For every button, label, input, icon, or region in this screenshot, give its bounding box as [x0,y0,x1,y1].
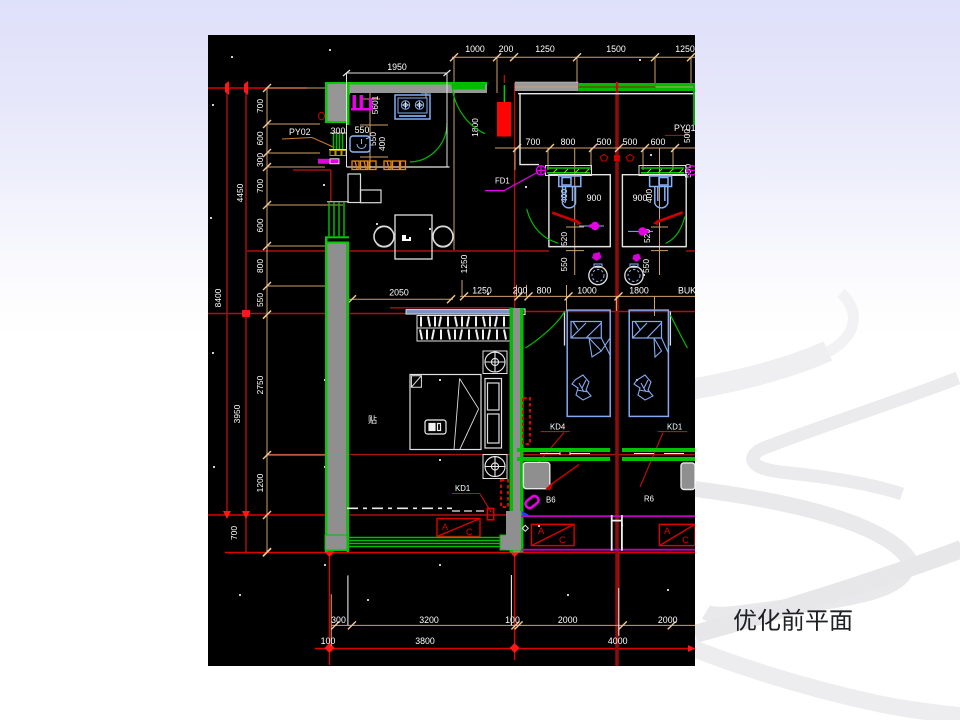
svg-text:400: 400 [559,189,569,203]
svg-text:1250: 1250 [459,254,469,273]
svg-text:600: 600 [255,131,265,145]
svg-text:800: 800 [561,137,576,147]
svg-text:600: 600 [651,137,666,147]
svg-text:550: 550 [255,293,265,307]
svg-text:1800: 1800 [629,286,649,296]
svg-text:BUK: BUK [678,286,695,296]
svg-text:R6: R6 [644,495,654,504]
svg-text:1200: 1200 [255,473,265,492]
svg-text:1250: 1250 [535,44,555,54]
svg-text:600: 600 [255,218,265,232]
svg-text:KD1: KD1 [667,423,682,432]
svg-text:300: 300 [255,153,265,167]
svg-text:3950: 3950 [232,404,242,423]
svg-text:400: 400 [644,189,654,203]
svg-text:200: 200 [513,286,528,296]
svg-text:4450: 4450 [235,183,245,202]
svg-text:A: A [538,526,545,537]
svg-text:800: 800 [537,286,552,296]
svg-text:700: 700 [229,526,239,540]
svg-text:200: 200 [499,44,514,54]
svg-text:700: 700 [526,137,541,147]
svg-text:550: 550 [559,257,569,271]
svg-text:2050: 2050 [389,288,409,298]
svg-text:KD1: KD1 [455,484,470,493]
svg-text:KD4: KD4 [550,423,566,432]
svg-text:4000: 4000 [608,636,628,646]
svg-text:300: 300 [331,615,346,625]
svg-text:500: 500 [623,137,638,147]
svg-text:B6: B6 [546,496,556,505]
svg-text:500: 500 [597,137,612,147]
svg-text:1950: 1950 [387,62,407,72]
svg-text:1000: 1000 [577,286,597,296]
svg-text:700: 700 [255,99,265,113]
svg-text:3200: 3200 [419,615,439,625]
svg-text:100: 100 [321,636,336,646]
svg-text:2000: 2000 [558,615,578,625]
svg-text:2000: 2000 [658,615,678,625]
svg-text:1000: 1000 [465,44,485,54]
svg-text:500: 500 [682,129,692,143]
svg-text:700: 700 [255,179,265,193]
svg-text:400: 400 [377,137,387,151]
svg-text:900: 900 [587,193,602,203]
svg-text:3800: 3800 [415,636,435,646]
svg-text:520: 520 [559,232,569,246]
svg-text:A: A [664,526,671,537]
svg-text:FD1: FD1 [495,177,510,186]
svg-text:1500: 1500 [606,44,626,54]
svg-text:1250: 1250 [472,286,492,296]
svg-text:A: A [442,522,448,532]
svg-text:100: 100 [505,615,520,625]
svg-text:1250: 1250 [675,44,695,54]
svg-text:C: C [559,535,566,546]
svg-text:贴: 贴 [368,414,377,425]
svg-text:2750: 2750 [255,375,265,394]
svg-text:C: C [466,527,473,537]
svg-text:PY02: PY02 [289,127,311,137]
svg-text:8400: 8400 [213,288,223,307]
svg-text:C: C [682,535,689,546]
svg-text:800: 800 [255,259,265,273]
